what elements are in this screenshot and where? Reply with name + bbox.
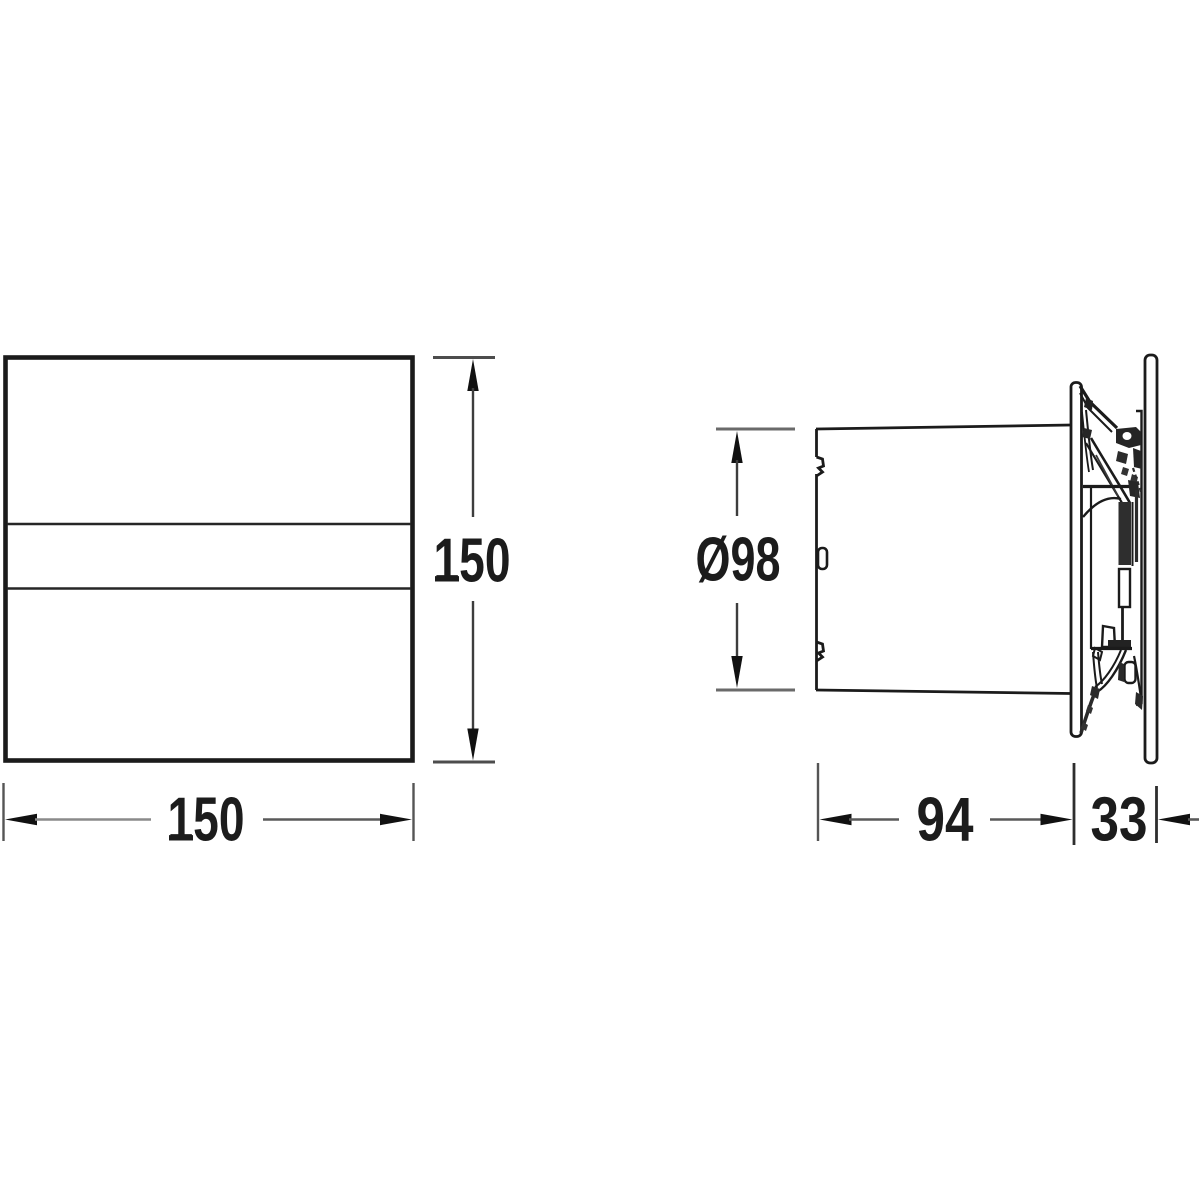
svg-text:94: 94 [917,786,974,855]
svg-text:33: 33 [1091,786,1148,855]
svg-text:150: 150 [168,786,245,855]
svg-text:150: 150 [434,527,511,596]
svg-text:Ø98: Ø98 [696,526,781,595]
